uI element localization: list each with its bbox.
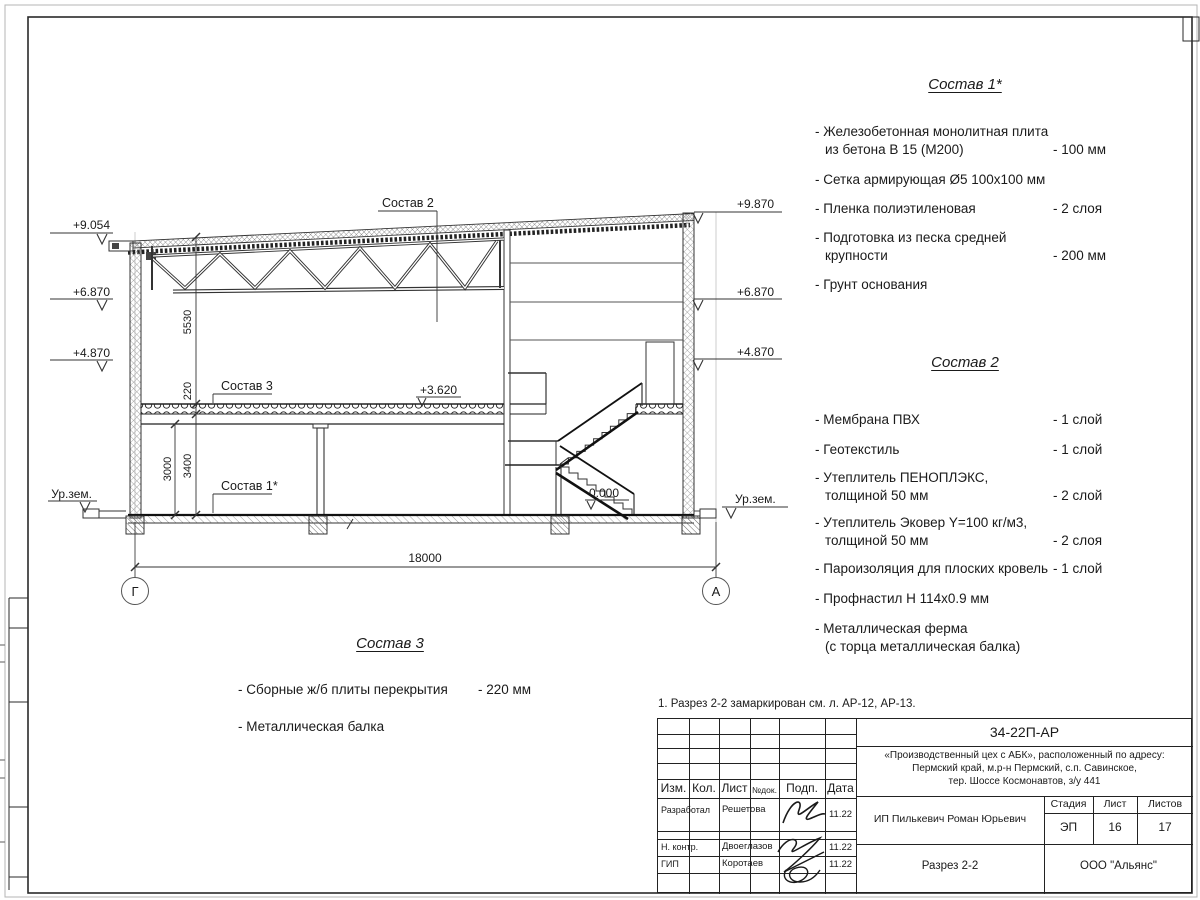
list-item: - Утеплитель ПЕНОПЛЭКС, толщиной 50 мм -… — [815, 469, 1113, 505]
item-text: - Профнастил Н 114х0.9 мм — [815, 590, 1113, 608]
level-zero: 0.000 — [589, 486, 619, 500]
building-section: 5530 220 3400 3000 18000 Г А Состав 2 Со… — [48, 196, 788, 605]
item-text: (с торца металлическая балка) — [815, 638, 1113, 656]
roof — [109, 214, 694, 253]
stage-value: ЭП — [1044, 820, 1093, 834]
foundation-block — [309, 516, 327, 534]
item-text: - Железобетонная монолитная плита — [815, 123, 1113, 141]
list-item: - Сборные ж/б плиты перекрытия - 220 мм — [238, 681, 548, 699]
floor-slab — [141, 404, 683, 424]
dim-story-b: 3000 — [162, 457, 174, 481]
item-text: - Металлическая балка — [238, 718, 548, 736]
col-kol: Кол. — [689, 781, 719, 795]
door-opening — [646, 342, 674, 404]
list-item: - Железобетонная монолитная плита из бет… — [815, 123, 1113, 159]
item-qty: - 2 слой — [1053, 487, 1102, 505]
clipped-edge-marks — [0, 645, 5, 842]
role-gip: ГИП — [661, 859, 679, 869]
right-wall — [683, 213, 694, 518]
col-izm: Изм. — [658, 781, 689, 795]
level-upper: +3.620 — [420, 383, 457, 397]
item-text: - Грунт основания — [815, 276, 1113, 294]
mark-4870-r: +4.870 — [737, 345, 774, 359]
item-qty: - 100 мм — [1053, 141, 1106, 159]
dim-span: 18000 — [408, 551, 442, 565]
list-item: - Сетка армирующая Ø5 100х100 мм — [815, 171, 1113, 189]
col-list: Лист — [719, 781, 750, 795]
list-item: - Металлическая ферма (с торца металличе… — [815, 620, 1113, 656]
composition-3-title: Состав 3 — [330, 635, 450, 652]
item-qty: - 1 слой — [1053, 411, 1102, 429]
project-line-1: «Производственный цех с АБК», расположен… — [860, 750, 1189, 761]
drawing-title: Разрез 2-2 — [856, 860, 1044, 872]
span-dimension: 18000 Г А — [122, 522, 730, 605]
mark-9054: +9.054 — [73, 218, 110, 232]
list-item: - Подготовка из песка средней крупности … — [815, 229, 1113, 265]
project-line-3: тер. Шоссе Космонавтов, з/у 441 — [860, 776, 1189, 787]
drawing-sheet: 5530 220 3400 3000 18000 Г А Состав 2 Со… — [0, 0, 1200, 900]
mark-9870: +9.870 — [737, 197, 774, 211]
staircase — [505, 373, 642, 519]
item-text: - Сетка армирующая Ø5 100х100 мм — [815, 171, 1113, 189]
list-item: - Геотекстиль - 1 слой — [815, 441, 1113, 459]
document-code: 34-22П-АР — [856, 724, 1193, 740]
client-name: ИП Пилькевич Роман Юрьевич — [856, 813, 1044, 825]
item-text: - Металлическая ферма — [815, 620, 1113, 638]
item-qty: - 2 слоя — [1053, 532, 1102, 550]
mark-6870-l: +6.870 — [73, 285, 110, 299]
elevation-marks-right: +9.870 +6.870 +4.870 Ур.зем. — [693, 197, 788, 518]
item-qty: - 1 слой — [1053, 560, 1102, 578]
mark-ground-l: Ур.зем. — [51, 487, 92, 501]
mark-6870-r: +6.870 — [737, 285, 774, 299]
col-data: Дата — [825, 781, 856, 795]
label-sostav2: Состав 2 — [382, 196, 434, 210]
upper-flight-steps — [560, 407, 636, 464]
ncontrol-name: Двоеглазов — [722, 841, 773, 852]
roof-truss — [146, 239, 504, 292]
foundation-block — [682, 516, 700, 534]
stage-label: Стадия — [1044, 798, 1093, 810]
item-qty: - 2 слоя — [1053, 200, 1102, 218]
composition-2-title: Состав 2 — [895, 354, 1035, 371]
composition-1-title: Состав 1* — [895, 76, 1035, 93]
sheets-value: 17 — [1137, 820, 1193, 834]
col-ndok: №док. — [750, 785, 779, 795]
title-block: Изм. Кол. Лист №док. Подп. Дата Разработ… — [657, 718, 1192, 893]
item-text: - Утеплитель Эковер Y=100 кг/м3, — [815, 514, 1113, 532]
list-item: - Пароизоляция для плоских кровель - 1 с… — [815, 560, 1113, 578]
project-line-2: Пермский край, м.р-н Пермский, с.п. Сави… — [860, 763, 1189, 774]
list-item: - Металлическая балка — [238, 718, 548, 736]
list-item: - Профнастил Н 114х0.9 мм — [815, 590, 1113, 608]
mark-ground-r: Ур.зем. — [735, 492, 776, 506]
upper-flight-stringer — [556, 412, 638, 470]
item-text: - Утеплитель ПЕНОПЛЭКС, — [815, 469, 1113, 487]
item-qty: - 220 мм — [478, 681, 531, 699]
column — [313, 424, 328, 515]
sheet-label: Лист — [1093, 798, 1137, 810]
list-item: - Пленка полиэтиленовая - 2 слоя — [815, 200, 1113, 218]
elevation-marks-left: +9.054 +6.870 +4.870 Ур.зем. — [48, 218, 113, 512]
label-sostav1: Состав 1* — [221, 479, 278, 493]
mark-4870-l: +4.870 — [73, 346, 110, 360]
item-qty: - 200 мм — [1053, 247, 1106, 265]
signature-gip — [772, 832, 834, 890]
developer-name: Решетова — [722, 804, 766, 815]
panel-joints — [510, 263, 683, 340]
leader-sostav2: Состав 2 — [378, 196, 437, 322]
list-item: - Утеплитель Эковер Y=100 кг/м3, толщино… — [815, 514, 1113, 550]
level-upper-mark: +3.620 — [416, 383, 461, 406]
dim-slab: 220 — [182, 382, 194, 400]
company-name: ООО "Альянс" — [1044, 860, 1193, 872]
item-text: - Подготовка из песка средней — [815, 229, 1113, 247]
left-wall — [130, 243, 141, 518]
item-qty: - 1 слой — [1053, 441, 1102, 459]
sheet-note: 1. Разрез 2-2 замаркирован см. л. АР-12,… — [658, 698, 916, 710]
leader-sostav1: Состав 1* — [213, 479, 278, 513]
axis-label-g: Г — [131, 584, 138, 599]
role-developer: Разработал — [661, 805, 710, 815]
left-margin-cells — [9, 598, 28, 890]
list-item: - Мембрана ПВХ - 1 слой — [815, 411, 1113, 429]
sheet-value: 16 — [1093, 820, 1137, 834]
dim-truss-height: 5530 — [182, 310, 194, 334]
developer-date: 11.22 — [825, 809, 856, 820]
list-item: - Грунт основания — [815, 276, 1113, 294]
leader-sostav3: Состав 3 — [213, 379, 273, 403]
axis-label-a: А — [712, 584, 721, 599]
gip-name: Коротаев — [722, 858, 763, 869]
label-sostav3: Состав 3 — [221, 379, 273, 393]
dim-story-a: 3400 — [182, 454, 194, 478]
role-ncontrol: Н. контр. — [661, 842, 698, 852]
foundation-block — [551, 516, 569, 534]
sheets-label: Листов — [1137, 798, 1193, 810]
signature-developer — [777, 791, 829, 833]
upper-flight-railing — [558, 383, 642, 441]
